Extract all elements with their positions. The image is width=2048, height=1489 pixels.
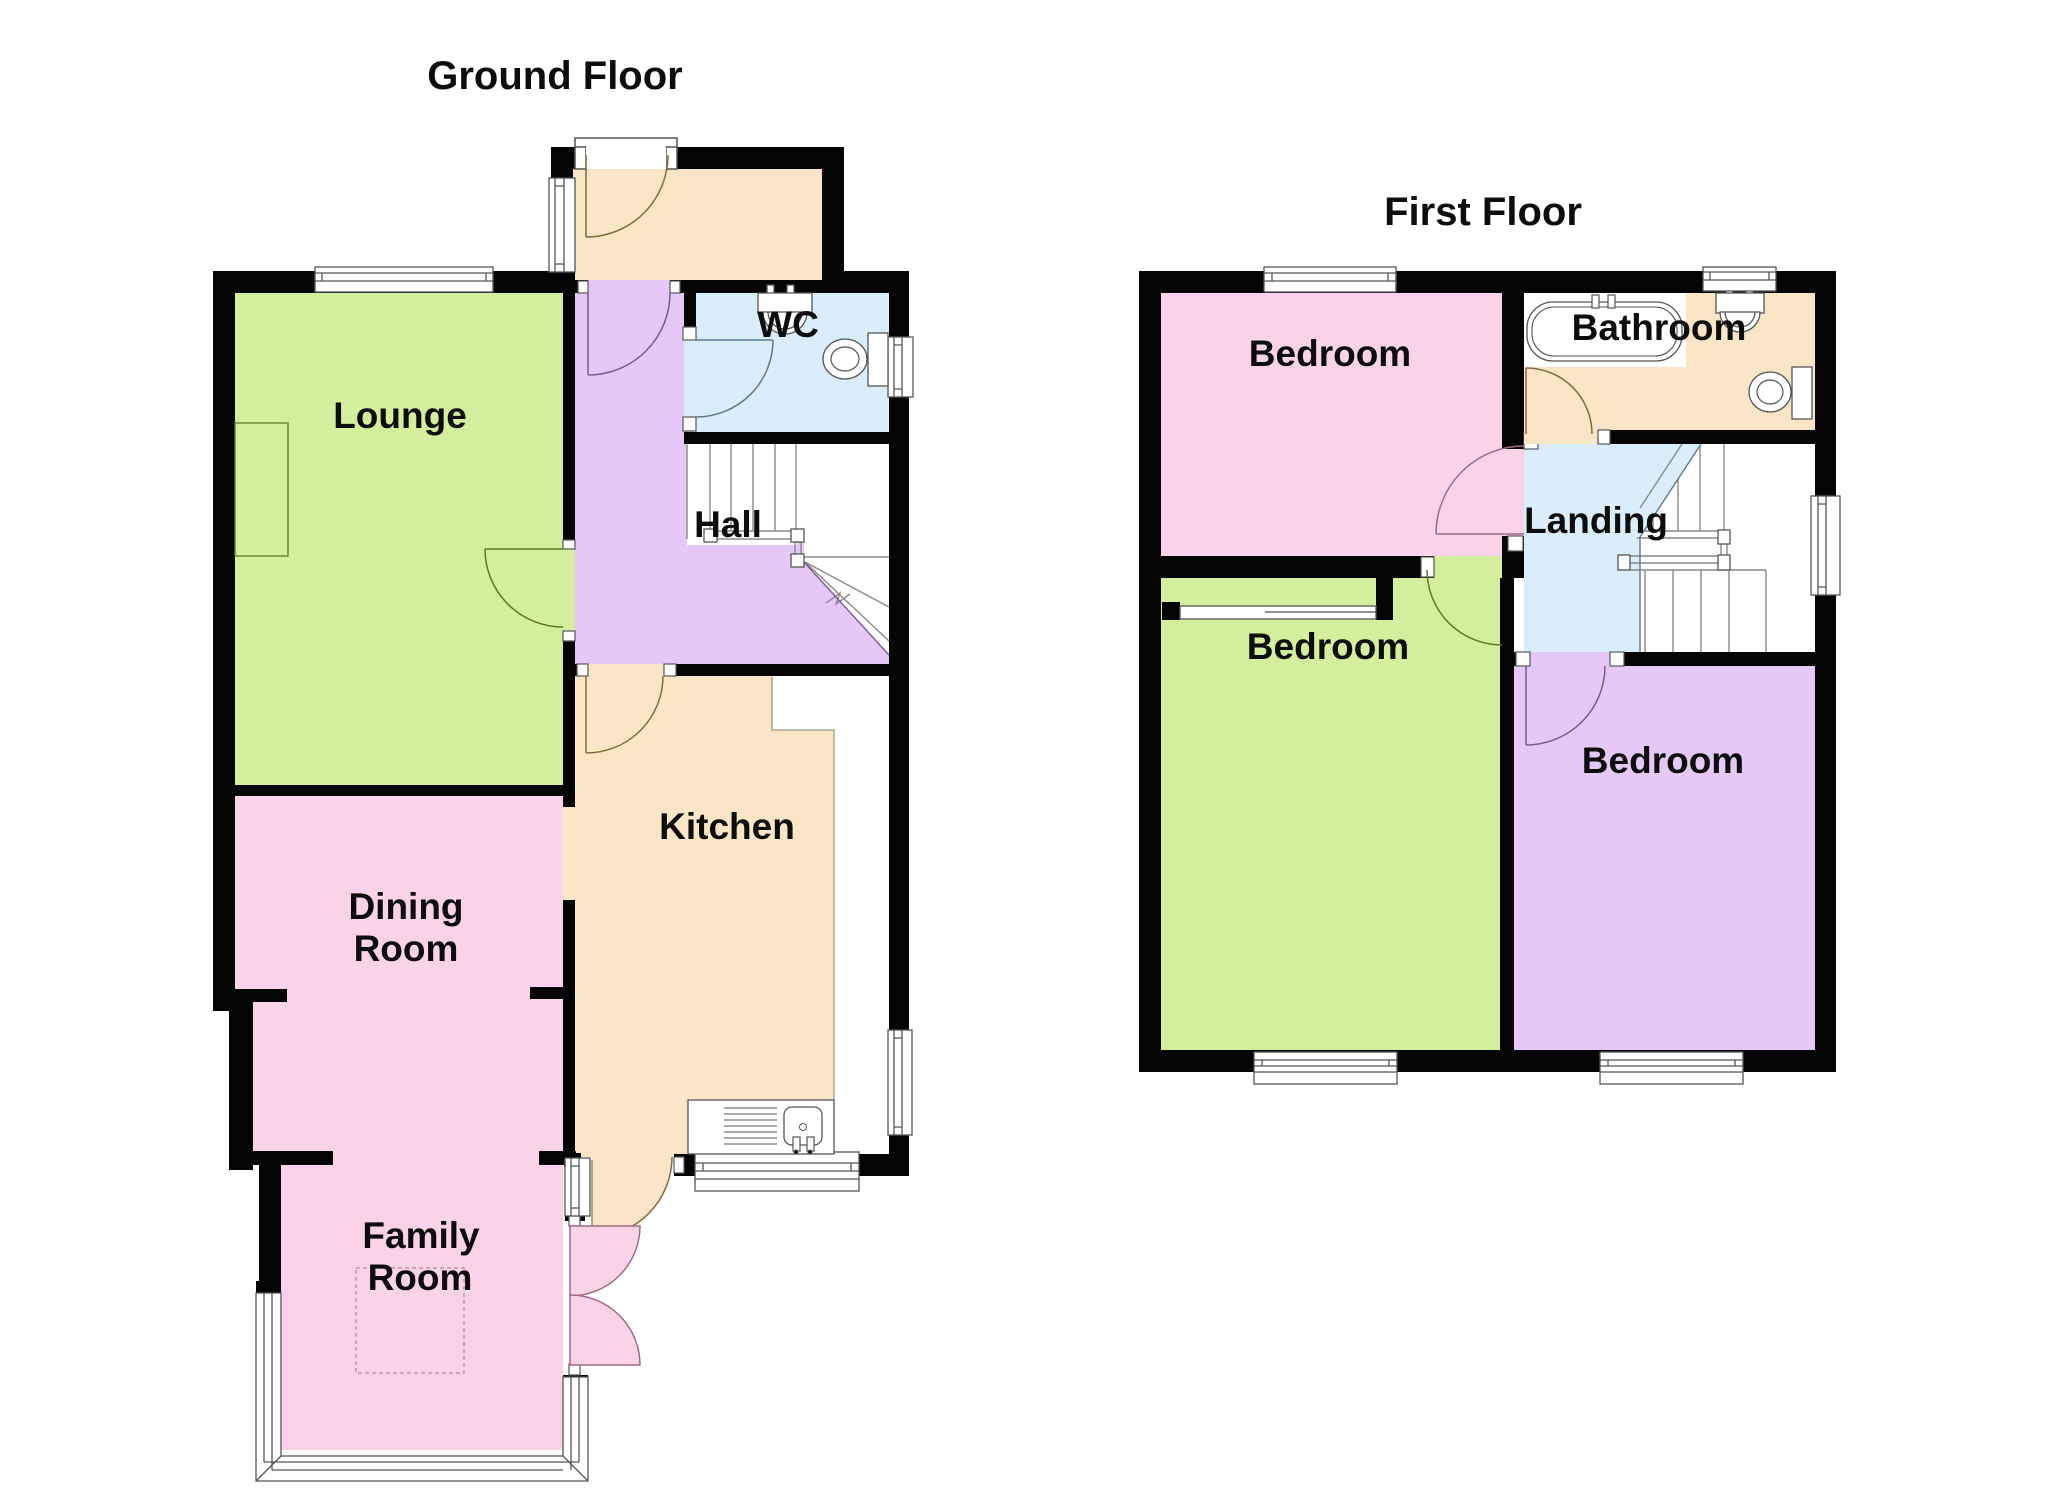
svg-text:Landing: Landing: [1524, 500, 1668, 541]
svg-text:Bedroom: Bedroom: [1247, 626, 1409, 667]
svg-text:Room: Room: [354, 928, 459, 969]
svg-text:Hall: Hall: [694, 504, 762, 545]
svg-text:Family: Family: [362, 1215, 480, 1256]
svg-text:First Floor: First Floor: [1384, 190, 1582, 234]
svg-text:Ground Floor: Ground Floor: [427, 54, 683, 98]
svg-text:WC: WC: [757, 304, 819, 345]
svg-text:Dining: Dining: [348, 886, 463, 927]
svg-text:Bathroom: Bathroom: [1572, 307, 1747, 348]
svg-text:Kitchen: Kitchen: [659, 806, 795, 847]
svg-text:Bedroom: Bedroom: [1249, 333, 1411, 374]
svg-text:Room: Room: [368, 1257, 473, 1298]
svg-text:Bedroom: Bedroom: [1582, 740, 1744, 781]
svg-text:Lounge: Lounge: [333, 395, 467, 436]
